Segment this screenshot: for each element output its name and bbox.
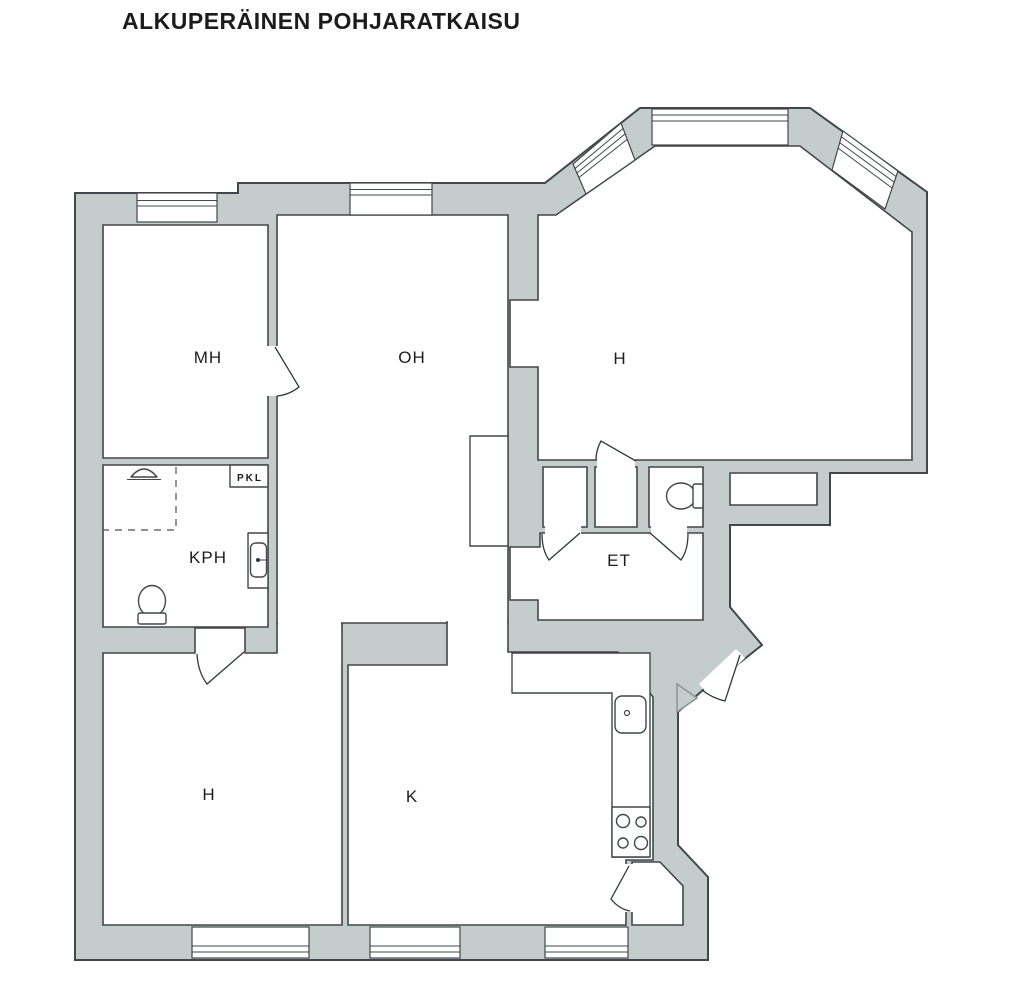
opening-closet-b (597, 459, 635, 469)
window-mh (137, 193, 217, 222)
closet-b-floor (595, 467, 637, 527)
floorplan-drawing: MH OH H KPH PKL ET H K (0, 0, 1024, 981)
closet-a-floor (543, 467, 587, 527)
room-label-pkl: PKL (237, 473, 263, 484)
room-oh-floor (277, 215, 508, 623)
opening-oh-k (448, 618, 507, 627)
opening-oh-h (278, 621, 341, 655)
exterior-niche (730, 473, 817, 505)
room-label-mh: MH (194, 348, 222, 367)
window-bay-top (652, 109, 788, 145)
washbasin-icon (248, 533, 268, 588)
opening-closet-a (545, 526, 581, 535)
room-label-h-upper: H (613, 349, 626, 368)
room-label-h-lower: H (202, 785, 215, 804)
room-label-et: ET (607, 551, 631, 570)
closet-box (470, 436, 508, 546)
stove-icon (612, 807, 650, 857)
opening-mh-oh (265, 346, 279, 396)
window-k-right (545, 927, 628, 958)
room-label-k: K (406, 787, 418, 806)
window-k-left (370, 927, 460, 958)
room-mh-floor (103, 225, 268, 458)
opening-wc (651, 526, 687, 535)
room-label-kph: KPH (189, 548, 227, 567)
toilet-icon (138, 586, 166, 625)
toilet-icon (667, 483, 704, 509)
window-h-lower (192, 927, 309, 958)
room-h-lower-floor (103, 624, 342, 925)
window-oh (350, 183, 432, 215)
room-kph-floor (103, 465, 268, 627)
opening-kph-h (196, 629, 244, 652)
kitchen-sink-icon (615, 696, 646, 733)
room-label-oh: OH (398, 348, 426, 367)
floorplan-page: ALKUPERÄINEN POHJARATKAISU (0, 0, 1024, 981)
